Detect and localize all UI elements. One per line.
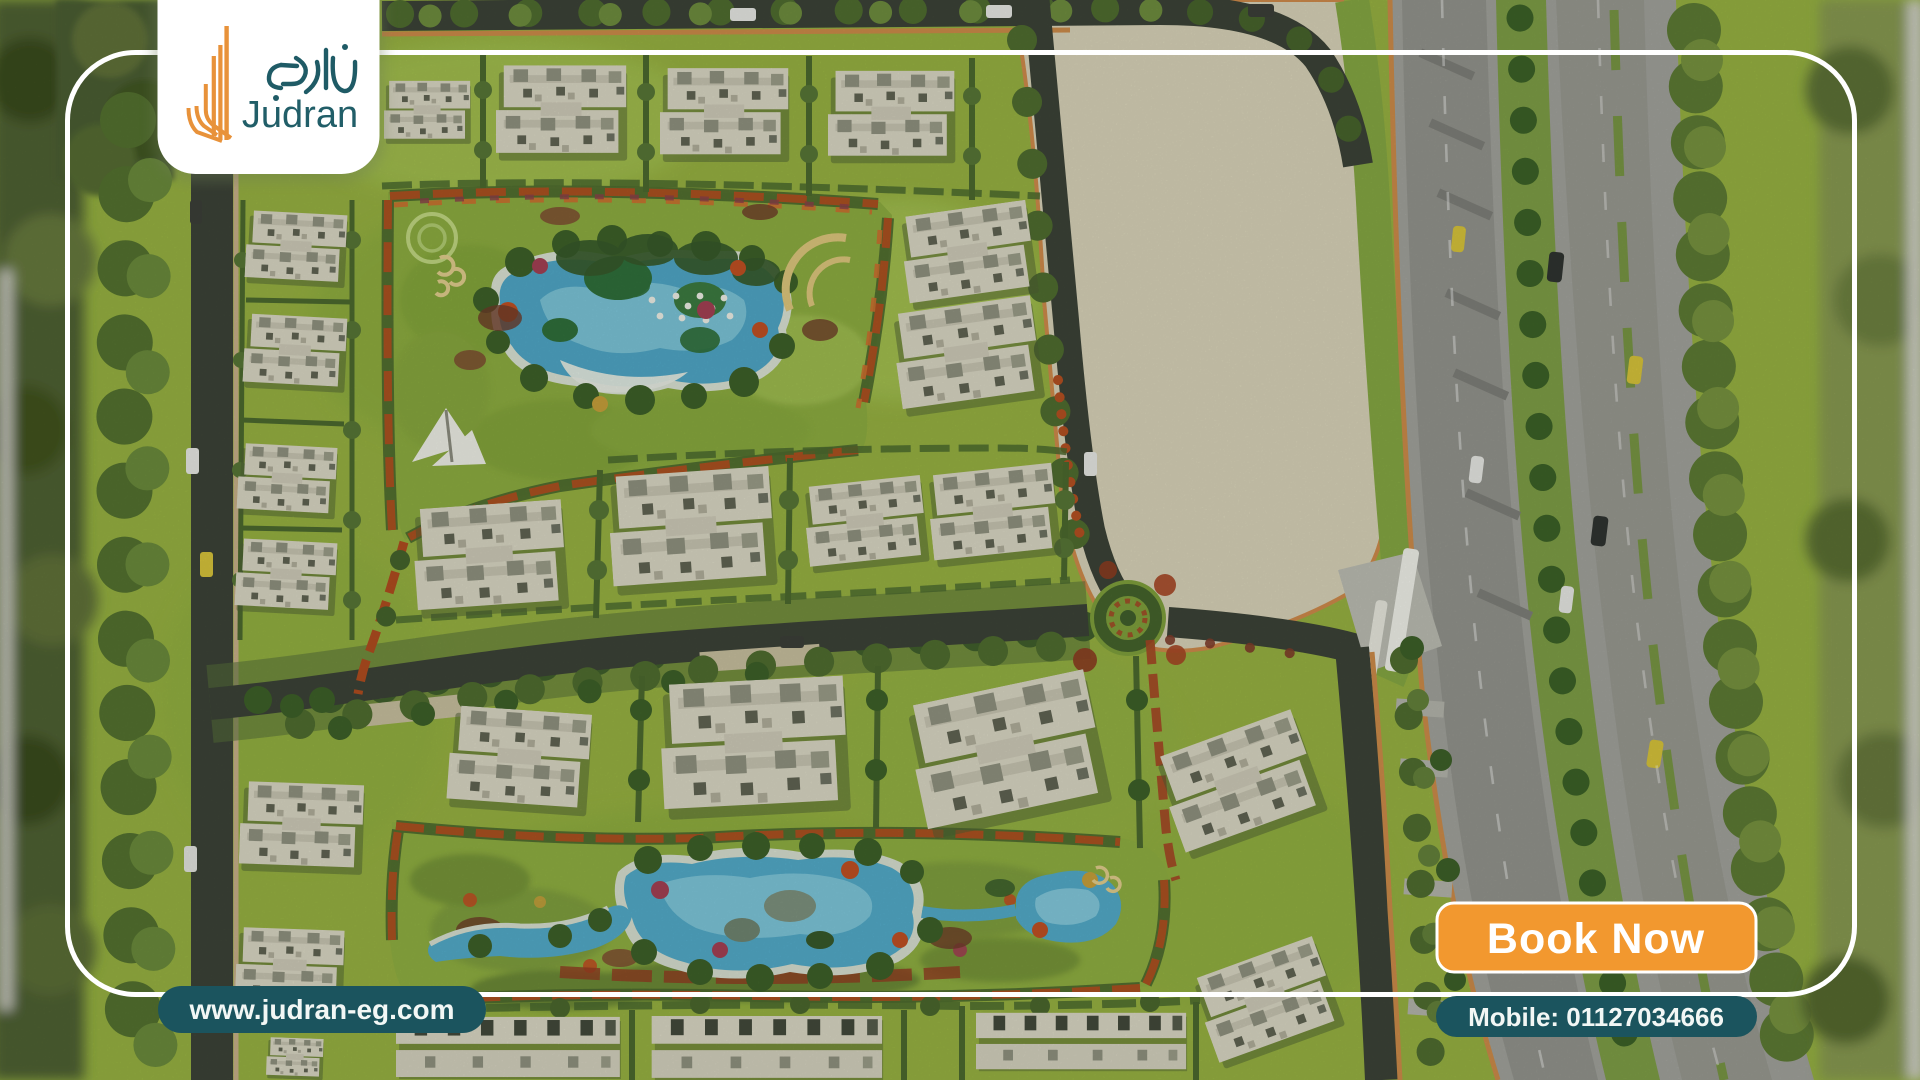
svg-text:Judran: Judran <box>242 94 358 136</box>
svg-text:www.judran-eg.com: www.judran-eg.com <box>189 994 455 1025</box>
svg-text:Book Now: Book Now <box>1487 915 1705 963</box>
svg-text:Mobile: 01127034666: Mobile: 01127034666 <box>1468 1002 1724 1032</box>
